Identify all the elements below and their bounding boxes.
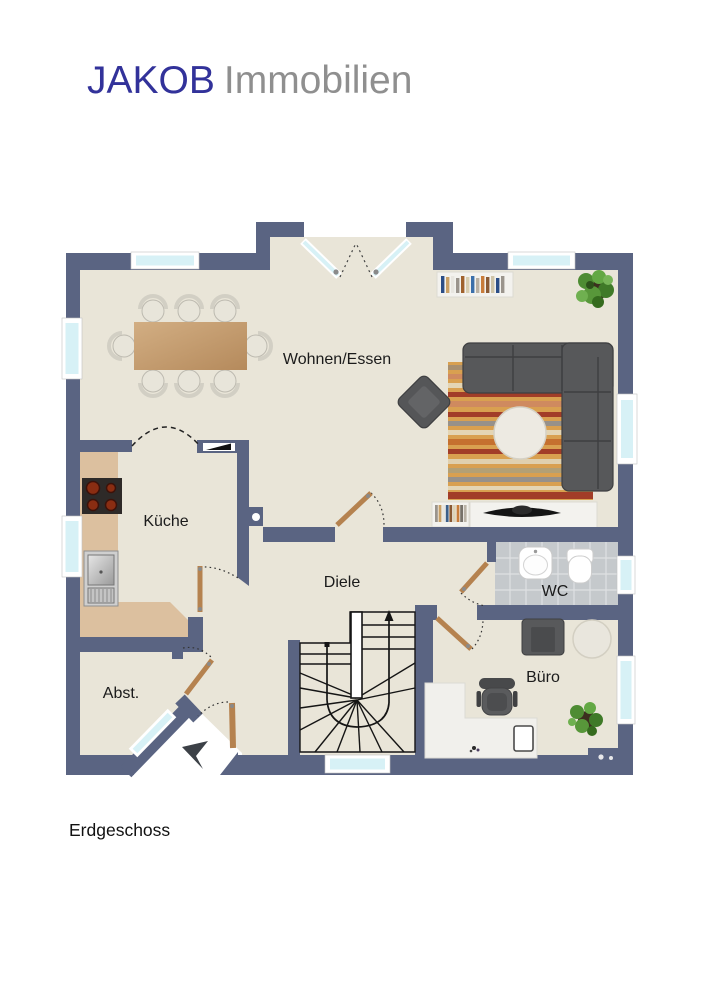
stove — [82, 478, 122, 514]
office-armchair — [522, 619, 564, 655]
window-left-upper — [62, 318, 82, 379]
toilet — [567, 549, 593, 583]
window-right-wc — [617, 556, 635, 594]
label-office: Büro — [526, 669, 560, 686]
label-kitchen: Küche — [143, 513, 188, 530]
office-chair — [477, 678, 518, 715]
window-top-left — [131, 252, 199, 269]
label-storage: Abst. — [103, 685, 139, 702]
window-bottom-stairs — [325, 755, 390, 773]
window-right-office — [617, 656, 635, 724]
coffee-table — [494, 407, 546, 459]
wall-dot — [252, 513, 260, 521]
label-hallway: Diele — [324, 574, 361, 591]
bay-floor — [266, 237, 437, 270]
label-living-dining: Wohnen/Essen — [283, 351, 391, 368]
door-entrance — [232, 703, 233, 748]
kitchen-sink — [84, 551, 118, 606]
floor-title: Erdgeschoss — [69, 820, 170, 841]
window-right-living — [617, 394, 637, 464]
small-book-shelf — [432, 502, 469, 527]
tv-sideboard — [470, 502, 597, 528]
bookshelf — [437, 272, 513, 297]
office-side-table — [573, 620, 611, 658]
label-wc: WC — [542, 583, 569, 600]
tablet — [514, 726, 533, 751]
window-left-lower — [62, 516, 82, 577]
wall-radiator — [203, 443, 235, 451]
floor-plan: Wohnen/Essen Küche Diele WC Büro Abst. — [0, 0, 706, 1000]
dining-table — [134, 322, 247, 370]
window-top-right — [508, 252, 575, 269]
